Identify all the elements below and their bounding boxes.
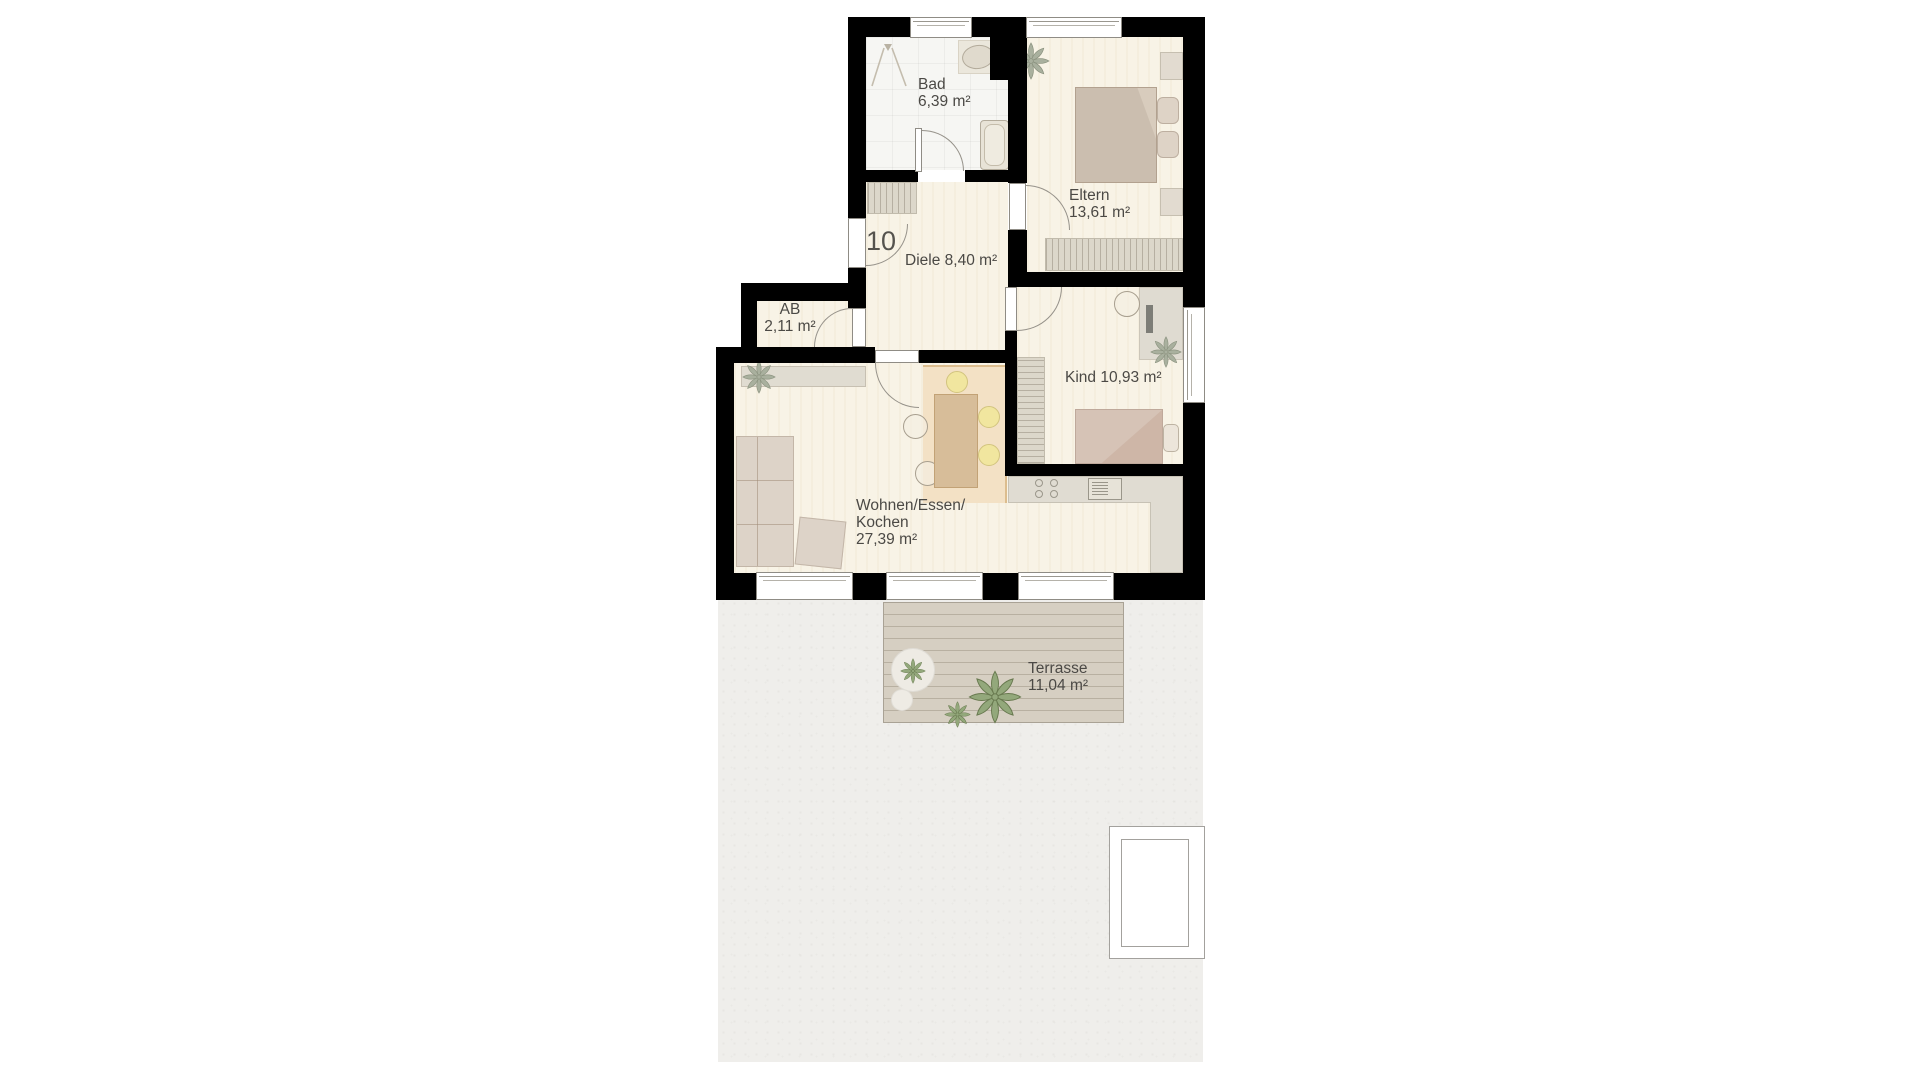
- stove-burner: [1035, 490, 1043, 498]
- bed-blanket-fold: [1126, 88, 1156, 184]
- room-area: 27,39 m²: [856, 531, 965, 548]
- armchair-ottoman: [795, 517, 847, 570]
- room-name: Eltern: [1069, 187, 1130, 204]
- stove-burner: [1050, 490, 1058, 498]
- wall-segment: [1114, 573, 1205, 600]
- wall-segment: [1008, 230, 1027, 278]
- room-label-kind: Kind 10,93 m²: [1065, 369, 1162, 386]
- dining-table: [934, 394, 978, 488]
- door-wohnen: [875, 350, 919, 363]
- wall-segment: [1008, 37, 1027, 183]
- sofa: [736, 436, 794, 567]
- double-bed: [1075, 87, 1157, 183]
- wardrobe: [1045, 238, 1183, 271]
- wall-segment: [1008, 272, 1205, 287]
- door-kind: [1005, 287, 1017, 331]
- bed-blanket: [1076, 410, 1162, 463]
- sink-drainer: [1092, 482, 1108, 495]
- window: [886, 572, 983, 600]
- stool: [978, 406, 1000, 428]
- plant-icon: [1150, 336, 1182, 368]
- wall-segment: [919, 350, 1017, 363]
- room-name: Terrasse: [1028, 660, 1088, 677]
- pillow: [1163, 424, 1179, 452]
- kitchen-sink: [1088, 478, 1122, 500]
- stool: [946, 371, 968, 393]
- stove-burner: [1035, 479, 1043, 487]
- plant-icon: [944, 701, 971, 728]
- wall-segment: [990, 17, 1010, 80]
- plant-icon: [900, 658, 926, 684]
- desk-monitor: [1146, 305, 1153, 333]
- room-label-diele: Diele 8,40 m²: [905, 252, 997, 269]
- entrance-door: [848, 218, 866, 268]
- site-outline-inner: [1121, 839, 1189, 947]
- shower-icon: [868, 40, 912, 90]
- wall-segment: [1183, 17, 1205, 308]
- room-label-wohnen: Wohnen/Essen/ Kochen 27,39 m²: [856, 497, 965, 548]
- room-area: 11,04 m²: [1028, 677, 1088, 694]
- wardrobe: [1017, 357, 1045, 464]
- door-eltern: [1009, 183, 1026, 230]
- wall-segment: [741, 283, 866, 301]
- terrace-planter-small: [891, 689, 913, 711]
- desk-chair: [1114, 291, 1140, 317]
- bathtub-inner: [984, 124, 1005, 166]
- wall-segment: [852, 301, 866, 308]
- nightstand: [1160, 52, 1183, 80]
- wall-segment: [965, 170, 1010, 182]
- door-bad: [915, 128, 922, 172]
- room-area: 10,93 m²: [1100, 369, 1161, 386]
- wall-segment: [853, 573, 886, 600]
- kitchen-counter: [1150, 502, 1183, 573]
- unit-number: 10: [866, 228, 896, 255]
- wall-segment: [716, 347, 875, 363]
- wall-segment: [848, 170, 918, 182]
- wall-segment: [1183, 402, 1205, 600]
- pillow: [1157, 97, 1179, 124]
- room-label-eltern: Eltern 13,61 m²: [1069, 187, 1130, 221]
- room-label-terrasse: Terrasse 11,04 m²: [1028, 660, 1088, 694]
- window: [1183, 307, 1205, 403]
- room-name: Bad: [918, 76, 971, 93]
- room-name: Kind: [1065, 369, 1096, 386]
- room-label-bad: Bad 6,39 m²: [918, 76, 971, 110]
- plant-icon: [968, 670, 1022, 724]
- window: [1026, 17, 1122, 38]
- wall-segment: [983, 573, 1018, 600]
- wall-segment: [716, 347, 734, 600]
- room-area: 13,61 m²: [1069, 204, 1130, 221]
- room-name: Wohnen/Essen/: [856, 497, 965, 514]
- room-name: AB: [752, 301, 828, 318]
- floor-plan: 10 Bad 6,39 m² Eltern 13,61 m² Diele 8,4…: [0, 0, 1920, 1084]
- wall-segment: [1005, 464, 1205, 476]
- door-ab: [852, 308, 866, 347]
- room-area: 6,39 m²: [918, 93, 971, 110]
- bathtub: [980, 120, 1009, 170]
- wall-segment: [848, 17, 866, 218]
- hall-wardrobe: [867, 182, 917, 214]
- stool: [978, 444, 1000, 466]
- room-area: 8,40 m²: [945, 252, 998, 269]
- stove-burner: [1050, 479, 1058, 487]
- plant-icon: [742, 360, 776, 394]
- pillow: [1157, 131, 1179, 158]
- nightstand: [1160, 188, 1183, 216]
- window: [756, 572, 853, 600]
- window: [910, 17, 972, 38]
- window: [1018, 572, 1114, 600]
- room-name: Kochen: [856, 514, 965, 531]
- dining-chair: [903, 414, 928, 439]
- single-bed: [1075, 409, 1163, 464]
- room-name: Diele: [905, 252, 940, 269]
- room-area: 2,11 m²: [752, 318, 828, 335]
- room-label-ab: AB 2,11 m²: [752, 301, 828, 335]
